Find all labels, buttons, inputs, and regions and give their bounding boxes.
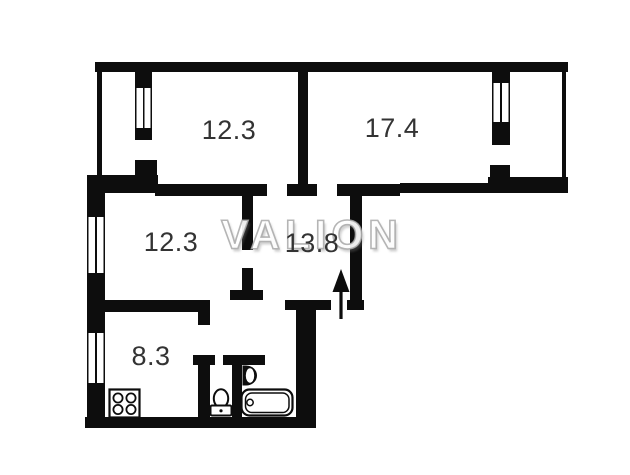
wall: [85, 417, 316, 428]
wall: [287, 184, 317, 196]
window-mullion: [143, 88, 145, 128]
stove-burner: [126, 393, 135, 402]
stove-burner: [126, 405, 135, 414]
entrance-arrow-shaft: [339, 291, 342, 319]
room-area-label: 8.3: [131, 341, 170, 372]
wall: [97, 71, 102, 176]
toilet-button: [219, 409, 222, 412]
wall: [347, 300, 364, 310]
window-mullion: [500, 83, 502, 122]
stove-icon: [110, 390, 140, 418]
stove-burner: [113, 393, 122, 402]
entrance-arrow-head: [333, 269, 350, 292]
stove-body: [110, 390, 140, 418]
room-area-label: 12.3: [202, 115, 257, 146]
window-mullion: [95, 333, 97, 383]
bathtub-drain: [247, 399, 253, 405]
wall: [230, 290, 263, 300]
stove-burner: [113, 405, 122, 414]
wall: [193, 355, 215, 365]
entrance-arrow-icon: [333, 269, 350, 319]
wall: [223, 355, 265, 365]
wall: [298, 71, 308, 196]
sink-basin: [246, 368, 254, 382]
window-mullion: [95, 217, 97, 273]
wall: [198, 300, 210, 325]
wall: [337, 184, 400, 196]
bathtub-icon: [242, 390, 293, 416]
wall: [296, 300, 316, 428]
wall: [135, 160, 157, 176]
wall: [488, 177, 568, 193]
sink-icon: [243, 366, 258, 386]
wall: [95, 62, 568, 72]
room-area-label: 17.4: [365, 113, 420, 144]
room-area-label: 12.3: [144, 227, 199, 258]
toilet-icon: [211, 389, 232, 415]
wall: [562, 71, 566, 177]
wall: [490, 165, 510, 177]
floorplan: 12.3 17.4 12.3 13.8 8.3 VALION: [0, 0, 630, 475]
wall: [400, 183, 492, 193]
room-area-label: 13.8: [285, 228, 340, 259]
wall: [87, 300, 205, 312]
wall: [232, 365, 242, 418]
